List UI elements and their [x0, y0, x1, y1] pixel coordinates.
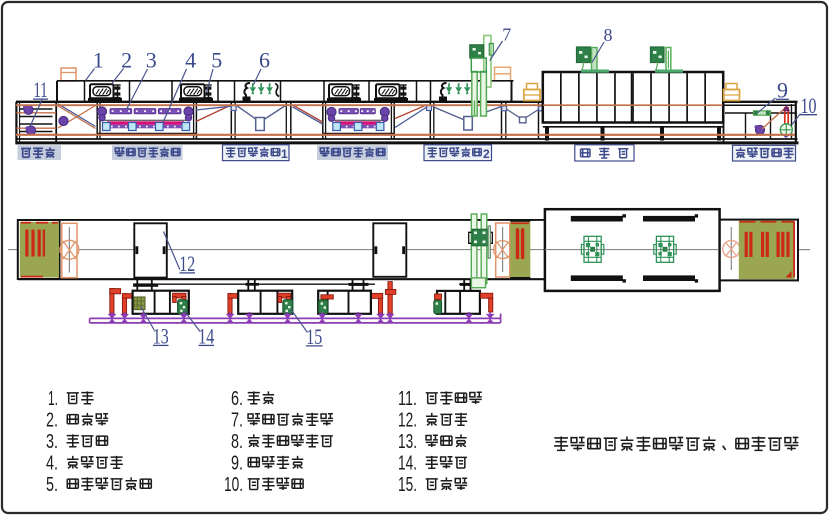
svg-text:3: 3 [146, 48, 157, 73]
svg-text:1.: 1. [48, 388, 58, 410]
svg-text:8: 8 [604, 25, 613, 45]
svg-text:8.: 8. [231, 431, 243, 453]
svg-text:10.: 10. [224, 474, 243, 496]
svg-text:7.: 7. [231, 410, 243, 432]
svg-text:1: 1 [281, 147, 288, 161]
svg-text:6: 6 [259, 48, 270, 73]
svg-text:11.: 11. [398, 388, 417, 410]
svg-text:14.: 14. [398, 453, 417, 475]
svg-text:5.: 5. [46, 474, 58, 496]
svg-text:13.: 13. [398, 431, 417, 453]
svg-text:7: 7 [502, 24, 511, 44]
svg-text:2.: 2. [46, 410, 58, 432]
svg-text:9.: 9. [231, 453, 243, 475]
svg-text:2: 2 [483, 147, 490, 161]
svg-text:5: 5 [211, 48, 222, 73]
svg-text:15.: 15. [398, 474, 417, 496]
svg-text:3.: 3. [46, 431, 58, 453]
svg-text:12.: 12. [398, 410, 417, 432]
svg-text:4.: 4. [46, 453, 58, 475]
svg-text:6.: 6. [231, 388, 243, 410]
svg-text:4: 4 [185, 48, 196, 73]
